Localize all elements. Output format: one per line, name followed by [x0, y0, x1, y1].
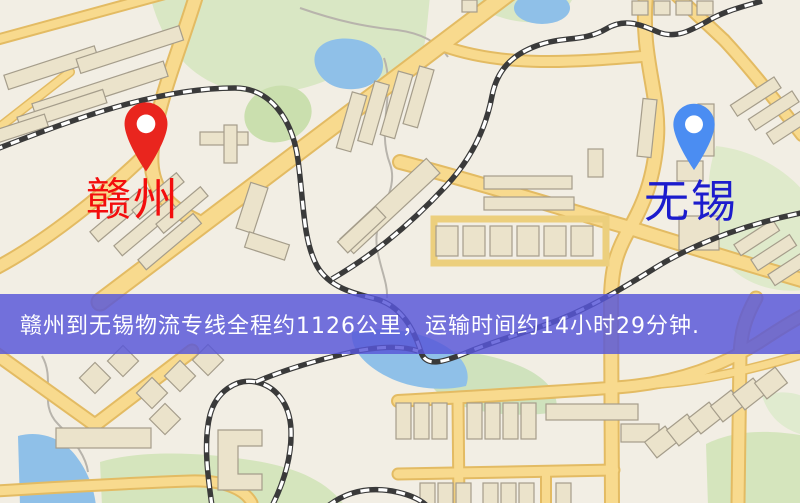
origin-pin-icon[interactable] — [118, 99, 174, 173]
route-info-text: 赣州到无锡物流专线全程约1126公里，运输时间约14小时29分钟. — [20, 308, 700, 340]
route-info-banner: 赣州到无锡物流专线全程约1126公里，运输时间约14小时29分钟. — [0, 294, 800, 354]
destination-label: 无锡 — [644, 179, 738, 224]
destination-pin-icon[interactable] — [667, 101, 721, 171]
map-view: 赣州到无锡物流专线全程约1126公里，运输时间约14小时29分钟. 赣州 无锡 — [0, 0, 800, 503]
map-background — [0, 0, 800, 503]
origin-label: 赣州 — [86, 177, 180, 222]
